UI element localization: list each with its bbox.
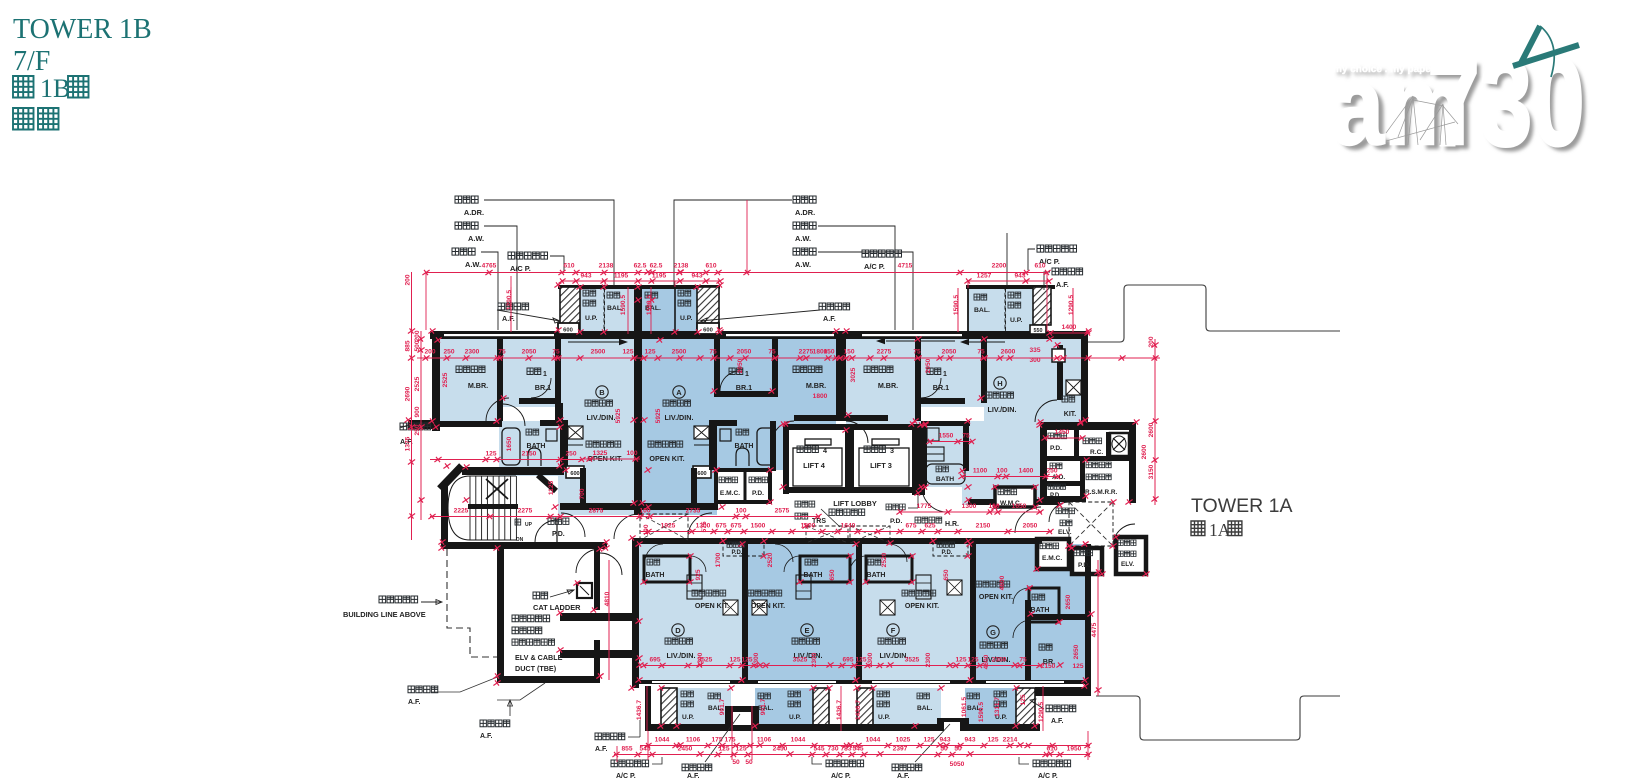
svg-text:250: 250	[1046, 468, 1057, 475]
svg-text:4600: 4600	[983, 654, 990, 669]
svg-text:125: 125	[955, 657, 966, 664]
svg-text:U.P.: U.P.	[878, 714, 890, 721]
svg-text:2138: 2138	[674, 263, 689, 270]
svg-text:U.P.: U.P.	[789, 714, 801, 721]
svg-text:ELV.: ELV.	[1058, 529, 1072, 536]
svg-text:1375: 1375	[405, 436, 412, 451]
svg-text:OPEN KIT.: OPEN KIT.	[751, 603, 785, 610]
svg-text:2520: 2520	[767, 552, 774, 567]
svg-text:M.BR.: M.BR.	[468, 381, 488, 390]
svg-text:545: 545	[852, 746, 863, 753]
svg-text:125: 125	[729, 657, 740, 664]
svg-text:3150: 3150	[1148, 464, 1155, 479]
svg-text:1400: 1400	[1062, 324, 1077, 331]
svg-text:250: 250	[443, 349, 454, 356]
svg-text:2520: 2520	[881, 552, 888, 567]
svg-text:2275: 2275	[518, 508, 533, 515]
svg-text:5925: 5925	[615, 408, 622, 423]
svg-text:BATH: BATH	[804, 572, 823, 579]
svg-text:H.R.: H.R.	[945, 521, 959, 528]
svg-text:A.F.: A.F.	[1056, 280, 1069, 289]
svg-text:2050: 2050	[737, 358, 744, 373]
svg-text:125: 125	[987, 737, 998, 744]
svg-text:2050: 2050	[522, 349, 537, 356]
svg-text:675: 675	[730, 523, 741, 530]
svg-text:1640: 1640	[841, 523, 856, 530]
svg-text:M.BR.: M.BR.	[806, 381, 826, 390]
svg-text:545: 545	[813, 746, 824, 753]
svg-text:75: 75	[1019, 657, 1027, 664]
svg-text:610: 610	[705, 263, 716, 270]
svg-text:943: 943	[580, 273, 591, 280]
svg-text:7/F: 7/F	[13, 46, 50, 77]
svg-text:M.BR.: M.BR.	[878, 381, 898, 390]
svg-text:75: 75	[709, 349, 717, 356]
svg-text:200: 200	[1148, 336, 1155, 347]
svg-text:2650: 2650	[1073, 644, 1080, 659]
svg-text:943: 943	[691, 273, 702, 280]
svg-text:P.D.: P.D.	[752, 490, 764, 497]
svg-text:943: 943	[1014, 273, 1025, 280]
svg-text:P.D.: P.D.	[1078, 562, 1090, 569]
svg-text:943: 943	[964, 737, 975, 744]
svg-text:125: 125	[923, 737, 934, 744]
svg-text:335: 335	[1029, 347, 1040, 354]
svg-text:my choice . my paper: my choice . my paper	[1333, 64, 1435, 75]
svg-text:D: D	[675, 626, 681, 635]
svg-text:1106: 1106	[757, 737, 772, 744]
svg-text:OPEN KIT.: OPEN KIT.	[695, 603, 729, 610]
svg-text:BR.1: BR.1	[933, 383, 949, 392]
svg-text:E.M.C.: E.M.C.	[720, 490, 740, 497]
svg-text:925: 925	[695, 569, 702, 580]
svg-text:am: am	[1331, 44, 1469, 169]
svg-text:CAT LADDER: CAT LADDER	[533, 603, 581, 612]
svg-text:2500: 2500	[591, 349, 606, 356]
svg-text:200: 200	[414, 330, 421, 341]
svg-text:4: 4	[823, 446, 827, 455]
svg-text:600: 600	[703, 328, 713, 334]
svg-text:5925: 5925	[655, 408, 662, 423]
svg-text:2300: 2300	[811, 652, 818, 667]
svg-text:695: 695	[649, 657, 660, 664]
svg-text:2050: 2050	[925, 358, 932, 373]
svg-text:BAL.: BAL.	[917, 705, 933, 712]
svg-text:1550: 1550	[939, 433, 954, 440]
svg-text:LIV./DIN.: LIV./DIN.	[587, 413, 616, 422]
svg-text:730: 730	[827, 746, 838, 753]
svg-text:A.F.: A.F.	[1051, 718, 1064, 725]
svg-text:885: 885	[405, 340, 412, 351]
svg-text:125: 125	[1072, 663, 1083, 670]
svg-text:1436.7: 1436.7	[855, 700, 862, 721]
svg-text:A.F.: A.F.	[480, 733, 493, 740]
svg-text:A.F.: A.F.	[823, 314, 836, 323]
svg-text:125: 125	[741, 657, 752, 664]
svg-text:TOWER 1B: TOWER 1B	[13, 14, 152, 45]
svg-text:3025: 3025	[850, 367, 857, 382]
svg-text:1650: 1650	[506, 436, 513, 451]
svg-text:2050: 2050	[942, 349, 957, 356]
svg-text:3: 3	[890, 446, 894, 455]
svg-text:TOWER 1A: TOWER 1A	[1191, 495, 1293, 517]
svg-text:1025: 1025	[896, 737, 911, 744]
svg-text:675: 675	[715, 523, 726, 530]
svg-text:75: 75	[913, 349, 921, 356]
svg-text:2225: 2225	[454, 508, 469, 515]
svg-text:4715: 4715	[898, 263, 913, 270]
svg-text:1: 1	[745, 371, 749, 378]
svg-text:2350: 2350	[992, 657, 1007, 664]
svg-text:650: 650	[943, 569, 950, 580]
svg-text:A.F.: A.F.	[897, 773, 910, 778]
svg-text:175: 175	[711, 737, 722, 744]
svg-text:OPEN KIT.: OPEN KIT.	[979, 594, 1013, 601]
svg-text:2275: 2275	[877, 349, 892, 356]
svg-text:2600: 2600	[1148, 422, 1155, 437]
svg-text:2275: 2275	[799, 349, 814, 356]
svg-text:DUCT (TBE): DUCT (TBE)	[515, 664, 557, 673]
svg-text:BAL.: BAL.	[974, 307, 990, 314]
svg-text:2150: 2150	[1041, 663, 1056, 670]
svg-text:600: 600	[697, 471, 706, 477]
svg-text:2300: 2300	[867, 652, 874, 667]
svg-text:1044: 1044	[791, 737, 806, 744]
svg-text:LIFT 3: LIFT 3	[870, 461, 892, 470]
svg-text:943: 943	[939, 737, 950, 744]
svg-text:1300: 1300	[962, 503, 977, 510]
svg-text:1290.5: 1290.5	[1068, 295, 1075, 316]
svg-text:2525: 2525	[442, 372, 449, 387]
svg-text:B: B	[599, 388, 605, 397]
svg-text:175: 175	[724, 737, 735, 744]
svg-text:1775: 1775	[917, 503, 932, 510]
svg-text:600: 600	[563, 328, 573, 334]
svg-text:1290.5: 1290.5	[506, 290, 513, 311]
svg-text:300: 300	[1029, 357, 1040, 364]
svg-text:675: 675	[905, 523, 916, 530]
svg-text:150: 150	[843, 349, 854, 356]
svg-text:LIV./DIN.: LIV./DIN.	[665, 413, 694, 422]
svg-text:2397: 2397	[893, 746, 908, 753]
svg-text:ELV.: ELV.	[1121, 561, 1134, 568]
svg-text:545: 545	[639, 746, 650, 753]
svg-text:LIFT LOBBY: LIFT LOBBY	[833, 499, 877, 508]
svg-text:A.W.: A.W.	[795, 260, 811, 269]
svg-text:4810: 4810	[604, 591, 611, 606]
svg-text:1700: 1700	[715, 552, 722, 567]
svg-text:A.W.: A.W.	[468, 234, 484, 243]
svg-text:625: 625	[924, 523, 935, 530]
svg-text:2450: 2450	[773, 746, 788, 753]
svg-text:100: 100	[996, 468, 1007, 475]
svg-text:A.W.: A.W.	[465, 260, 481, 269]
svg-text:A/C P.: A/C P.	[864, 262, 885, 271]
svg-text:575: 575	[701, 521, 708, 532]
svg-text:200: 200	[424, 349, 435, 356]
svg-text:125: 125	[644, 349, 655, 356]
svg-text:A/C P.: A/C P.	[1038, 773, 1058, 778]
svg-text:1044: 1044	[655, 737, 670, 744]
svg-text:1: 1	[943, 371, 947, 378]
svg-text:1436.7: 1436.7	[836, 700, 843, 721]
svg-text:75: 75	[977, 349, 985, 356]
svg-text:1125: 1125	[548, 481, 555, 496]
svg-text:U.P.: U.P.	[680, 315, 692, 322]
svg-text:2138: 2138	[599, 263, 614, 270]
svg-text:UP: UP	[525, 522, 533, 528]
svg-text:A/C P.: A/C P.	[831, 773, 851, 778]
svg-text:783: 783	[840, 746, 851, 753]
svg-text:695: 695	[842, 657, 853, 664]
svg-text:BR.1: BR.1	[535, 383, 551, 392]
svg-text:P.D.: P.D.	[552, 531, 565, 538]
svg-text:A: A	[676, 388, 682, 397]
svg-text:A.F.: A.F.	[502, 314, 515, 323]
svg-text:1925: 1925	[661, 523, 676, 530]
svg-text:ELV & CABLE: ELV & CABLE	[515, 653, 563, 662]
svg-text:2525: 2525	[414, 376, 421, 391]
svg-text:A.F.: A.F.	[408, 699, 421, 706]
svg-text:R.S.M.R.R.: R.S.M.R.R.	[1085, 489, 1118, 496]
svg-text:3525: 3525	[905, 657, 920, 664]
svg-text:855: 855	[621, 746, 632, 753]
svg-text:75: 75	[962, 433, 970, 440]
svg-text:BATH: BATH	[936, 476, 954, 483]
svg-text:2050: 2050	[1023, 523, 1038, 530]
svg-text:A.DR.: A.DR.	[795, 208, 815, 217]
svg-text:75: 75	[498, 349, 506, 356]
svg-text:P.D.: P.D.	[1050, 493, 1061, 499]
svg-text:50: 50	[745, 759, 753, 766]
svg-text:A/C P.: A/C P.	[616, 773, 636, 778]
svg-text:1500: 1500	[751, 523, 766, 530]
svg-text:200: 200	[405, 274, 412, 285]
svg-text:1100: 1100	[973, 468, 988, 475]
svg-text:R.C.: R.C.	[1090, 449, 1103, 456]
svg-text:500: 500	[414, 340, 421, 351]
svg-text:1450: 1450	[1055, 429, 1070, 436]
svg-text:62.5: 62.5	[650, 263, 663, 270]
svg-text:75: 75	[552, 349, 560, 356]
svg-text:2690: 2690	[405, 386, 412, 401]
svg-text:2735: 2735	[686, 508, 701, 515]
svg-text:F: F	[891, 626, 896, 635]
svg-text:2500: 2500	[672, 349, 687, 356]
svg-text:1950: 1950	[1067, 746, 1082, 753]
svg-text:550: 550	[1034, 328, 1043, 334]
svg-text:2450: 2450	[678, 746, 693, 753]
svg-text:1650: 1650	[1012, 503, 1027, 510]
svg-text:OPEN KIT.: OPEN KIT.	[649, 454, 684, 463]
svg-text:125: 125	[622, 349, 633, 356]
svg-text:2600: 2600	[1141, 444, 1148, 459]
svg-text:A.W.: A.W.	[795, 234, 811, 243]
svg-text:H: H	[997, 379, 1002, 388]
svg-text:4475: 4475	[1091, 622, 1098, 637]
svg-text:2200: 2200	[992, 263, 1007, 270]
svg-text:1106: 1106	[686, 737, 701, 744]
svg-text:1590.5: 1590.5	[646, 295, 653, 316]
svg-text:2600: 2600	[1001, 349, 1016, 356]
svg-text:KIT.: KIT.	[1064, 411, 1077, 418]
svg-text:50: 50	[954, 746, 962, 753]
svg-text:3525: 3525	[793, 657, 808, 664]
svg-text:100: 100	[626, 450, 637, 457]
svg-text:OPEN KIT.: OPEN KIT.	[905, 603, 939, 610]
svg-text:P.D.: P.D.	[942, 550, 953, 556]
svg-text:LIV./DIN.: LIV./DIN.	[988, 405, 1017, 414]
svg-text:U.P.: U.P.	[1010, 317, 1022, 324]
svg-text:2050: 2050	[737, 349, 752, 356]
svg-text:2650: 2650	[1065, 594, 1072, 609]
svg-text:901.7: 901.7	[719, 698, 726, 715]
svg-text:125: 125	[855, 657, 866, 664]
svg-text:E: E	[804, 626, 809, 635]
svg-text:250: 250	[414, 424, 421, 435]
svg-text:2875: 2875	[589, 508, 604, 515]
svg-text:P.D.: P.D.	[732, 550, 743, 556]
svg-text:1800: 1800	[813, 349, 828, 356]
svg-text:4765: 4765	[482, 263, 497, 270]
svg-text:901.7: 901.7	[760, 698, 767, 715]
svg-text:1195: 1195	[652, 273, 667, 280]
svg-text:2300: 2300	[465, 349, 480, 356]
svg-text:U.P.: U.P.	[585, 315, 597, 322]
svg-text:1: 1	[543, 371, 547, 378]
svg-text:125: 125	[718, 746, 729, 753]
svg-text:A.F.: A.F.	[687, 773, 700, 778]
svg-text:1257: 1257	[977, 273, 992, 280]
svg-text:125: 125	[967, 657, 978, 664]
svg-text:P.D.: P.D.	[890, 518, 902, 525]
svg-text:LIFT 4: LIFT 4	[803, 461, 826, 470]
svg-text:1325: 1325	[593, 450, 608, 457]
svg-text:BATH: BATH	[527, 443, 546, 450]
svg-text:1400: 1400	[1019, 468, 1034, 475]
svg-text:P.D.: P.D.	[1050, 445, 1062, 452]
svg-text:A.DR.: A.DR.	[464, 208, 484, 217]
svg-text:BUILDING LINE ABOVE: BUILDING LINE ABOVE	[343, 610, 426, 619]
svg-text:E.M.C.: E.M.C.	[1042, 555, 1062, 562]
svg-text:A/C P.: A/C P.	[510, 264, 531, 273]
svg-text:50: 50	[732, 759, 740, 766]
svg-text:125: 125	[1020, 694, 1027, 705]
svg-text:75: 75	[768, 349, 776, 356]
svg-text:1436.7: 1436.7	[636, 700, 643, 721]
svg-text:2300: 2300	[925, 652, 932, 667]
svg-text:1800: 1800	[813, 393, 828, 400]
svg-text:5050: 5050	[950, 761, 965, 768]
svg-text:DN: DN	[516, 537, 524, 543]
svg-text:1590.5: 1590.5	[953, 295, 960, 316]
svg-text:100: 100	[735, 508, 746, 515]
svg-text:2150: 2150	[976, 523, 991, 530]
svg-text:1590.5: 1590.5	[978, 702, 985, 723]
svg-text:U.P.: U.P.	[682, 714, 694, 721]
svg-text:1061.5: 1061.5	[961, 697, 968, 718]
svg-text:A.F.: A.F.	[595, 746, 608, 753]
svg-text:700: 700	[579, 488, 586, 499]
svg-text:610: 610	[1034, 263, 1045, 270]
svg-text:1B: 1B	[40, 74, 70, 103]
svg-text:G: G	[990, 628, 996, 637]
svg-text:BATH: BATH	[735, 443, 754, 450]
svg-text:1290.5: 1290.5	[1038, 702, 1045, 723]
svg-text:100: 100	[643, 524, 650, 535]
svg-text:1044: 1044	[866, 737, 881, 744]
svg-text:2575: 2575	[775, 508, 790, 515]
svg-text:BR.1: BR.1	[736, 383, 752, 392]
svg-text:600: 600	[570, 471, 579, 477]
svg-text:610: 610	[563, 263, 574, 270]
svg-text:250: 250	[565, 451, 576, 458]
svg-text:2214: 2214	[1003, 737, 1018, 744]
svg-text:650: 650	[829, 569, 836, 580]
svg-text:125: 125	[485, 451, 496, 458]
svg-text:BATH: BATH	[867, 572, 886, 579]
svg-text:2150: 2150	[522, 451, 537, 458]
svg-text:4600: 4600	[999, 575, 1006, 590]
svg-text:900: 900	[414, 406, 421, 417]
svg-text:1195: 1195	[614, 273, 629, 280]
svg-text:LIV./DIN.: LIV./DIN.	[667, 651, 696, 660]
svg-text:125: 125	[735, 746, 746, 753]
svg-text:1311.7: 1311.7	[994, 697, 1001, 717]
svg-text:BATH: BATH	[646, 572, 665, 579]
svg-text:1590.5: 1590.5	[620, 295, 627, 316]
svg-text:62.5: 62.5	[634, 263, 647, 270]
